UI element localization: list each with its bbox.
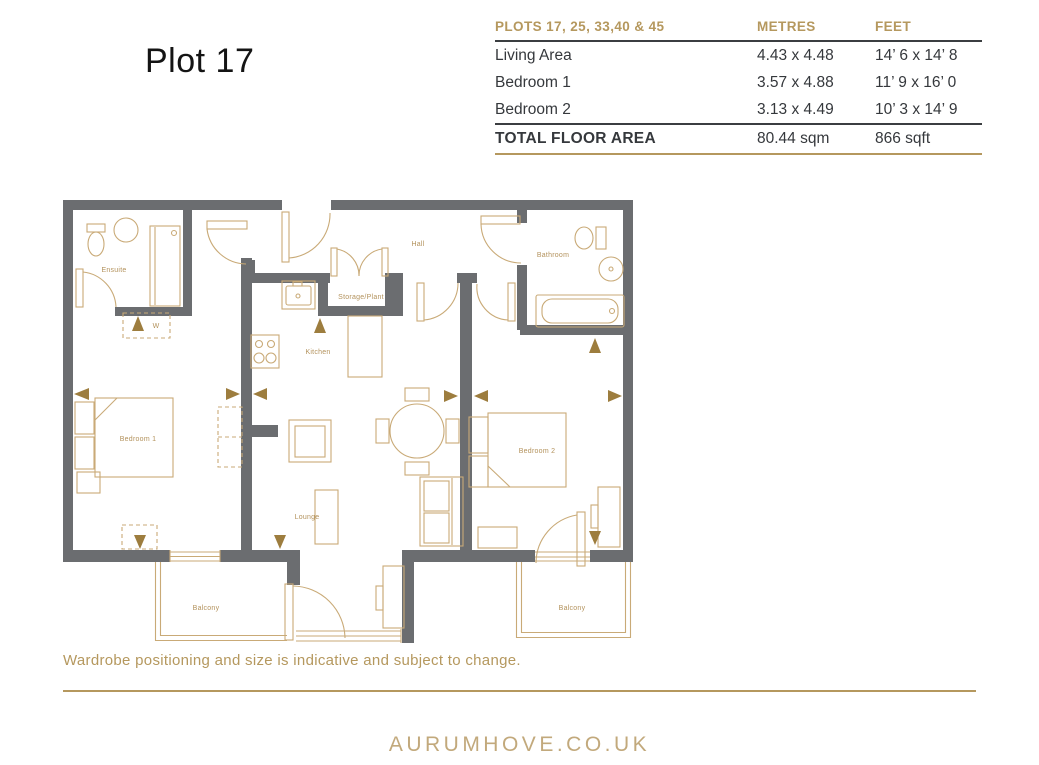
- room-label-bedroom2: Bedroom 2: [519, 448, 556, 455]
- row-feet: 11’ 9 x 16’ 0: [875, 74, 982, 92]
- row-feet: 14’ 6 x 14’ 8: [875, 47, 982, 65]
- table-row: Living Area 4.43 x 4.48 14’ 6 x 14’ 8: [495, 42, 982, 69]
- row-metres: 4.43 x 4.48: [757, 47, 875, 65]
- row-label: Living Area: [495, 47, 757, 65]
- floor-plan-svg: Ensuite W Hall Storage/Plant Kitchen Bat…: [60, 195, 640, 650]
- table-row: Bedroom 1 3.57 x 4.88 11’ 9 x 16’ 0: [495, 69, 982, 96]
- website-footer: AURUMHOVE.CO.UK: [0, 733, 1039, 757]
- windows-layer: [170, 550, 590, 643]
- row-feet: 10’ 3 x 14’ 9: [875, 101, 982, 119]
- row-label: Bedroom 1: [495, 74, 757, 92]
- balcony-outlines: [156, 562, 631, 641]
- row-metres: 3.57 x 4.88: [757, 74, 875, 92]
- row-label: Bedroom 2: [495, 101, 757, 119]
- room-label-wardrobe: W: [153, 323, 160, 330]
- row-metres: 3.13 x 4.49: [757, 101, 875, 119]
- room-label-storage-plant: Storage/Plant: [338, 294, 384, 301]
- spec-header-plots: PLOTS 17, 25, 33,40 & 45: [495, 19, 757, 34]
- divider-rule: [63, 690, 976, 692]
- room-label-bedroom1: Bedroom 1: [120, 436, 157, 443]
- floor-plan: Ensuite W Hall Storage/Plant Kitchen Bat…: [60, 195, 640, 650]
- page-title: Plot 17: [145, 42, 254, 81]
- total-feet: 866 sqft: [875, 130, 982, 148]
- spec-header-feet: FEET: [875, 19, 982, 34]
- wardrobe-note: Wardrobe positioning and size is indicat…: [63, 652, 521, 669]
- table-row: Bedroom 2 3.13 x 4.49 10’ 3 x 14’ 9: [495, 96, 982, 123]
- walls-layer: [63, 200, 633, 643]
- table-row-total: TOTAL FLOOR AREA 80.44 sqm 866 sqft: [495, 123, 982, 155]
- total-metres: 80.44 sqm: [757, 130, 875, 148]
- wardrobe-dashed-layer: [122, 313, 242, 549]
- room-label-balcony-left: Balcony: [193, 605, 220, 612]
- spec-header-metres: METRES: [757, 19, 875, 34]
- room-label-balcony-right: Balcony: [559, 605, 586, 612]
- total-label: TOTAL FLOOR AREA: [495, 130, 757, 148]
- spec-table: PLOTS 17, 25, 33,40 & 45 METRES FEET Liv…: [495, 13, 982, 155]
- spec-table-header: PLOTS 17, 25, 33,40 & 45 METRES FEET: [495, 13, 982, 42]
- brochure-page: Plot 17 PLOTS 17, 25, 33,40 & 45 METRES …: [0, 0, 1039, 765]
- room-label-lounge: Lounge: [295, 514, 320, 521]
- room-label-hall: Hall: [411, 241, 424, 248]
- fixtures-layer: [75, 218, 624, 628]
- room-label-ensuite: Ensuite: [101, 267, 126, 274]
- room-label-bathroom: Bathroom: [537, 252, 569, 259]
- room-label-kitchen: Kitchen: [305, 349, 330, 356]
